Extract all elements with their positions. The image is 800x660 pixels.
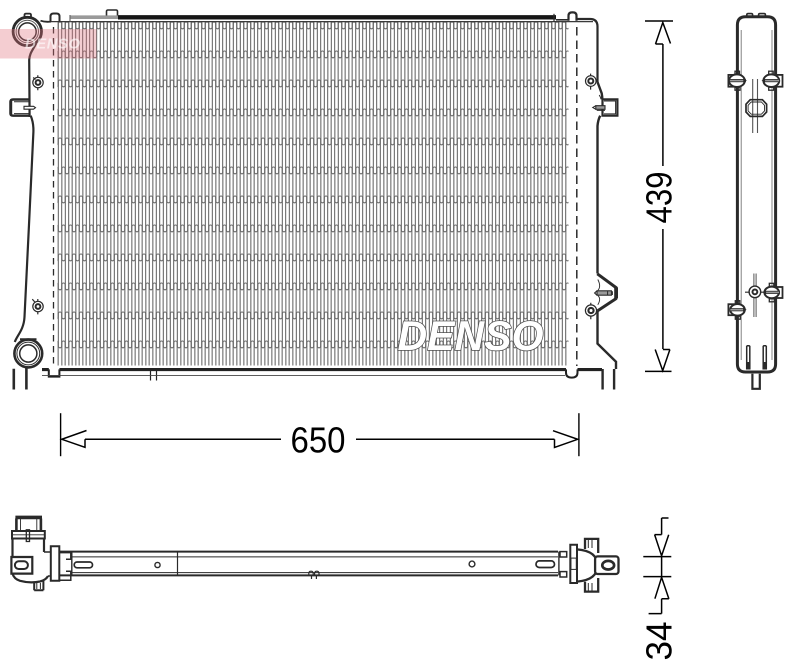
svg-text:DENSO: DENSO xyxy=(398,312,544,359)
svg-text:650: 650 xyxy=(291,419,346,460)
svg-text:439: 439 xyxy=(639,172,680,224)
svg-text:34: 34 xyxy=(639,622,680,660)
svg-text:DENSO: DENSO xyxy=(25,37,81,53)
